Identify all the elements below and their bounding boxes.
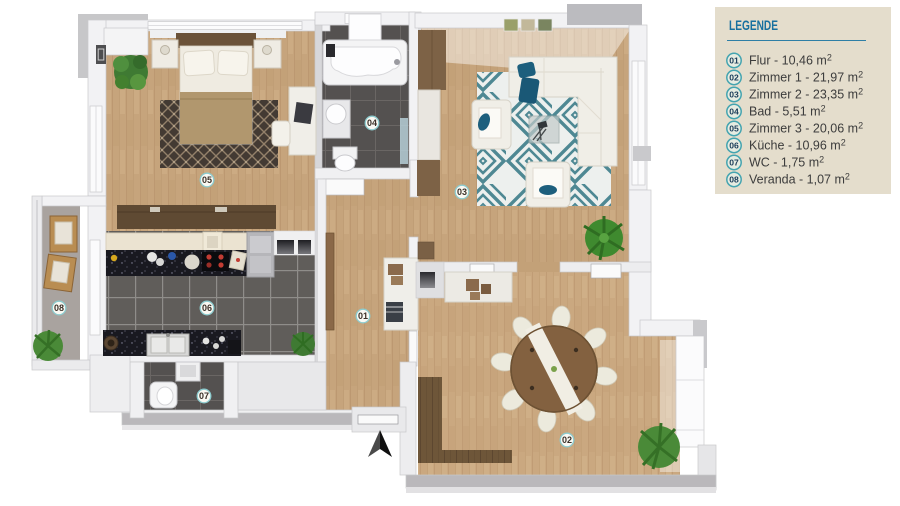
svg-text:07: 07 [729,158,739,168]
svg-text:03: 03 [457,187,467,197]
svg-text:Flur - 10,46 m2: Flur - 10,46 m2 [749,53,832,68]
svg-text:01: 01 [358,311,368,321]
svg-text:LEGENDE: LEGENDE [729,18,778,33]
svg-text:06: 06 [202,303,212,313]
svg-text:Küche - 10,96 m2: Küche - 10,96 m2 [749,138,846,153]
svg-text:02: 02 [562,435,572,445]
svg-text:05: 05 [202,175,212,185]
svg-text:01: 01 [729,56,739,66]
svg-text:08: 08 [54,303,64,313]
svg-text:Bad - 5,51 m2: Bad - 5,51 m2 [749,104,826,119]
svg-text:04: 04 [367,118,377,128]
svg-text:07: 07 [199,391,209,401]
svg-text:08: 08 [729,175,739,185]
svg-text:Zimmer 2 - 23,35 m2: Zimmer 2 - 23,35 m2 [749,87,863,102]
svg-text:Veranda - 1,07 m2: Veranda - 1,07 m2 [749,172,850,187]
svg-text:06: 06 [729,141,739,151]
svg-text:WC - 1,75 m2: WC - 1,75 m2 [749,155,824,170]
svg-text:02: 02 [729,73,739,83]
svg-text:03: 03 [729,90,739,100]
svg-text:Zimmer 1 - 21,97 m2: Zimmer 1 - 21,97 m2 [749,70,863,85]
svg-text:05: 05 [729,124,739,134]
svg-text:04: 04 [729,107,739,117]
svg-text:Zimmer 3 - 20,06 m2: Zimmer 3 - 20,06 m2 [749,121,863,136]
